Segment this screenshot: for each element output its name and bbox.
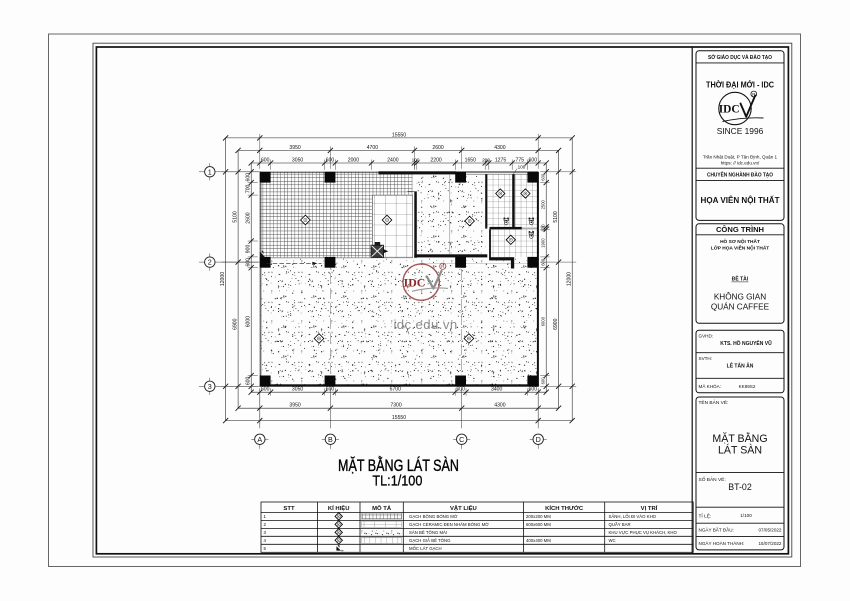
svg-text:400x400 MM: 400x400 MM [526,538,551,543]
svg-text:3400: 3400 [491,387,502,393]
svg-text:7300: 7300 [390,403,401,409]
svg-text:MÔ TẢ: MÔ TẢ [372,504,392,512]
svg-text:SẢNH, LỐI ĐI VÀO KHO: SẢNH, LỐI ĐI VÀO KHO [609,514,657,519]
svg-text:6000: 6000 [541,316,546,326]
svg-text:MẶT BẰNG: MẶT BẰNG [712,432,767,445]
svg-text:KTS. HỒ NGUYỄN VŨ: KTS. HỒ NGUYỄN VŨ [720,340,772,347]
svg-text:B: B [328,435,333,444]
svg-text:900: 900 [246,245,252,254]
svg-text:600: 600 [529,157,538,163]
svg-text:KHÔNG GIAN: KHÔNG GIAN [714,292,766,302]
svg-text:6900: 6900 [553,318,559,329]
svg-text:SINCE 1996: SINCE 1996 [717,126,764,136]
svg-text:5100: 5100 [233,211,239,222]
svg-text:700: 700 [246,184,252,193]
svg-text:600: 600 [456,387,465,393]
svg-text:A: A [257,435,262,444]
svg-text:4700: 4700 [367,145,378,151]
svg-text:BT-02: BT-02 [728,482,752,492]
svg-text:QUÁN CAFFEE: QUÁN CAFFEE [711,301,770,311]
svg-text:15550: 15550 [392,415,406,421]
svg-text:1: 1 [208,167,212,176]
svg-text:LÊ TẤN ÂN: LÊ TẤN ÂN [727,362,754,370]
svg-text:GẠCH CERAMIC ĐEN NHÁM BÓNG MỜ: GẠCH CERAMIC ĐEN NHÁM BÓNG MỜ [409,522,489,527]
svg-text:R: R [752,92,755,97]
svg-text:KK89S2: KK89S2 [739,384,756,389]
svg-text:2600: 2600 [432,145,443,151]
svg-text:HỌA VIÊN NỘI THẤT: HỌA VIÊN NỘI THẤT [701,194,781,205]
svg-text:MẶT BẰNG LÁT SÀN: MẶT BẰNG LÁT SÀN [338,456,459,475]
svg-text:QUẦY BAR: QUẦY BAR [609,522,631,527]
svg-text:12000: 12000 [220,272,226,286]
svg-text:200: 200 [482,157,490,162]
svg-text:600: 600 [261,157,270,163]
svg-text:15550: 15550 [392,132,406,138]
svg-text:1/100: 1/100 [740,513,752,518]
svg-text:GVHD:: GVHD: [699,333,714,338]
svg-text:VỊ TRÍ: VỊ TRÍ [641,504,658,512]
svg-text:IDC: IDC [719,104,740,116]
svg-text:4300: 4300 [494,145,505,151]
svg-text:VẬT LIỆU: VẬT LIỆU [450,504,477,512]
svg-text:MÃ KHÓA:: MÃ KHÓA: [699,383,721,389]
svg-text:2500: 2500 [541,199,546,209]
svg-text:KHU VỰC PHỤC VỤ KHÁCH, KHO: KHU VỰC PHỤC VỤ KHÁCH, KHO [609,530,678,535]
svg-text:C: C [459,435,464,444]
svg-text:2400: 2400 [387,157,398,163]
svg-text:1650: 1650 [465,157,476,163]
svg-text:CHUYÊN NGHÀNH ĐÀO TẠO: CHUYÊN NGHÀNH ĐÀO TẠO [707,170,773,178]
svg-text:WC: WC [609,538,616,543]
svg-text:2600: 2600 [246,212,252,223]
svg-text:GẠCH GIẢ BÊ TÔNG: GẠCH GIẢ BÊ TÔNG [409,538,451,543]
svg-text:Trần Nhật Duật, P Tân Định, Qu: Trần Nhật Duật, P Tân Định, Quận 1 [703,155,778,160]
svg-text:600: 600 [529,387,538,393]
svg-text:600: 600 [541,173,546,181]
svg-text:ĐỀ TÀI: ĐỀ TÀI [732,275,749,282]
svg-text:CÔNG TRÌNH: CÔNG TRÌNH [716,225,764,234]
svg-text:NGÀY BẮT ĐẦU:: NGÀY BẮT ĐẦU: [699,526,734,533]
svg-text:12000: 12000 [567,272,573,286]
svg-text:2000: 2000 [348,157,359,163]
svg-text:SỐ BẢN VẼ:: SỐ BẢN VẼ: [699,476,726,483]
svg-text:LÁT SÀN: LÁT SÀN [718,443,762,456]
svg-text:THỜI ĐẠI MỚI - IDC: THỜI ĐẠI MỚI - IDC [706,78,774,89]
svg-text:SÀN BÊ TÔNG MÀI: SÀN BÊ TÔNG MÀI [409,530,447,535]
svg-text:600: 600 [261,387,270,393]
svg-text:6700: 6700 [390,387,401,393]
svg-text:15/07/2022: 15/07/2022 [759,541,782,546]
svg-text:https: // idc.edu.vn/: https: // idc.edu.vn/ [721,160,760,165]
svg-text:200x200 MM: 200x200 MM [526,514,551,519]
svg-text:3950: 3950 [289,145,300,151]
svg-text:600: 600 [246,173,252,182]
svg-text:D: D [536,435,541,444]
svg-text:KÍ HIỆU: KÍ HIỆU [328,504,350,512]
svg-text:1275: 1275 [495,157,506,163]
svg-text:600: 600 [326,157,335,163]
svg-text:STT: STT [283,506,295,512]
svg-text:IDC: IDC [404,276,426,290]
svg-text:1900: 1900 [541,238,546,248]
svg-text:3950: 3950 [289,403,300,409]
svg-text:100: 100 [412,157,420,162]
svg-text:MỐC LÁT GẠCH: MỐC LÁT GẠCH [409,546,442,551]
svg-text:3050: 3050 [292,157,303,163]
svg-text:5100: 5100 [553,211,559,222]
svg-text:idc.edu.vn: idc.edu.vn [393,317,457,332]
svg-text:TL:1/100: TL:1/100 [372,474,422,490]
svg-text:600: 600 [541,258,546,266]
svg-text:100: 100 [541,224,546,232]
svg-text:3: 3 [208,382,212,391]
svg-text:NGÀY HOÀN THÀNH:: NGÀY HOÀN THÀNH: [699,540,745,546]
svg-text:4300: 4300 [494,403,505,409]
svg-text:GẠCH BÔNG BÓNG MỜ: GẠCH BÔNG BÓNG MỜ [409,514,458,519]
svg-text:600: 600 [326,387,335,393]
svg-text:3050: 3050 [292,387,303,393]
svg-text:2200: 2200 [430,157,441,163]
svg-text:07/05/2022: 07/05/2022 [759,528,782,533]
svg-text:SỞ GIÁO DỤC VÀ ĐÀO TẠO: SỞ GIÁO DỤC VÀ ĐÀO TẠO [708,54,772,61]
svg-text:6900: 6900 [233,318,239,329]
svg-text:6000: 6000 [246,316,252,327]
svg-text:SVTH:: SVTH: [699,356,713,361]
svg-text:600: 600 [246,376,252,385]
svg-text:775: 775 [516,157,525,163]
svg-text:KÍCH THƯỚC: KÍCH THƯỚC [545,504,584,512]
svg-text:100: 100 [518,164,526,169]
svg-text:600x600 MM: 600x600 MM [526,522,551,527]
svg-text:600: 600 [541,377,546,385]
svg-text:2: 2 [208,258,212,267]
